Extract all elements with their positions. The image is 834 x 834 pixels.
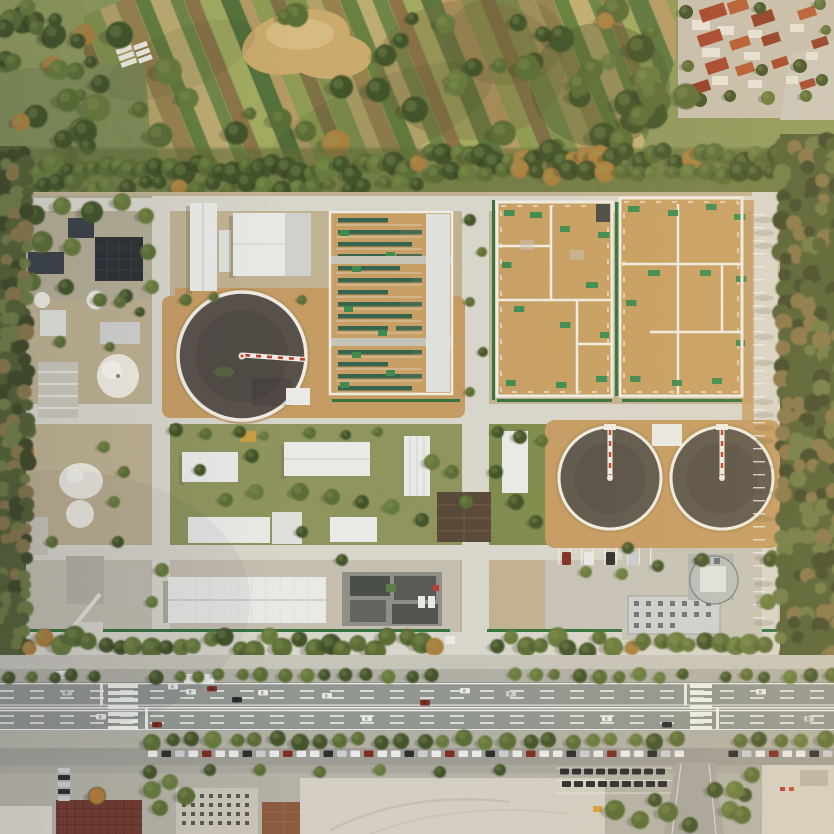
aerial-photograph [0, 0, 834, 834]
photo-grain [0, 0, 834, 834]
aerial-photo-canvas [0, 0, 834, 834]
